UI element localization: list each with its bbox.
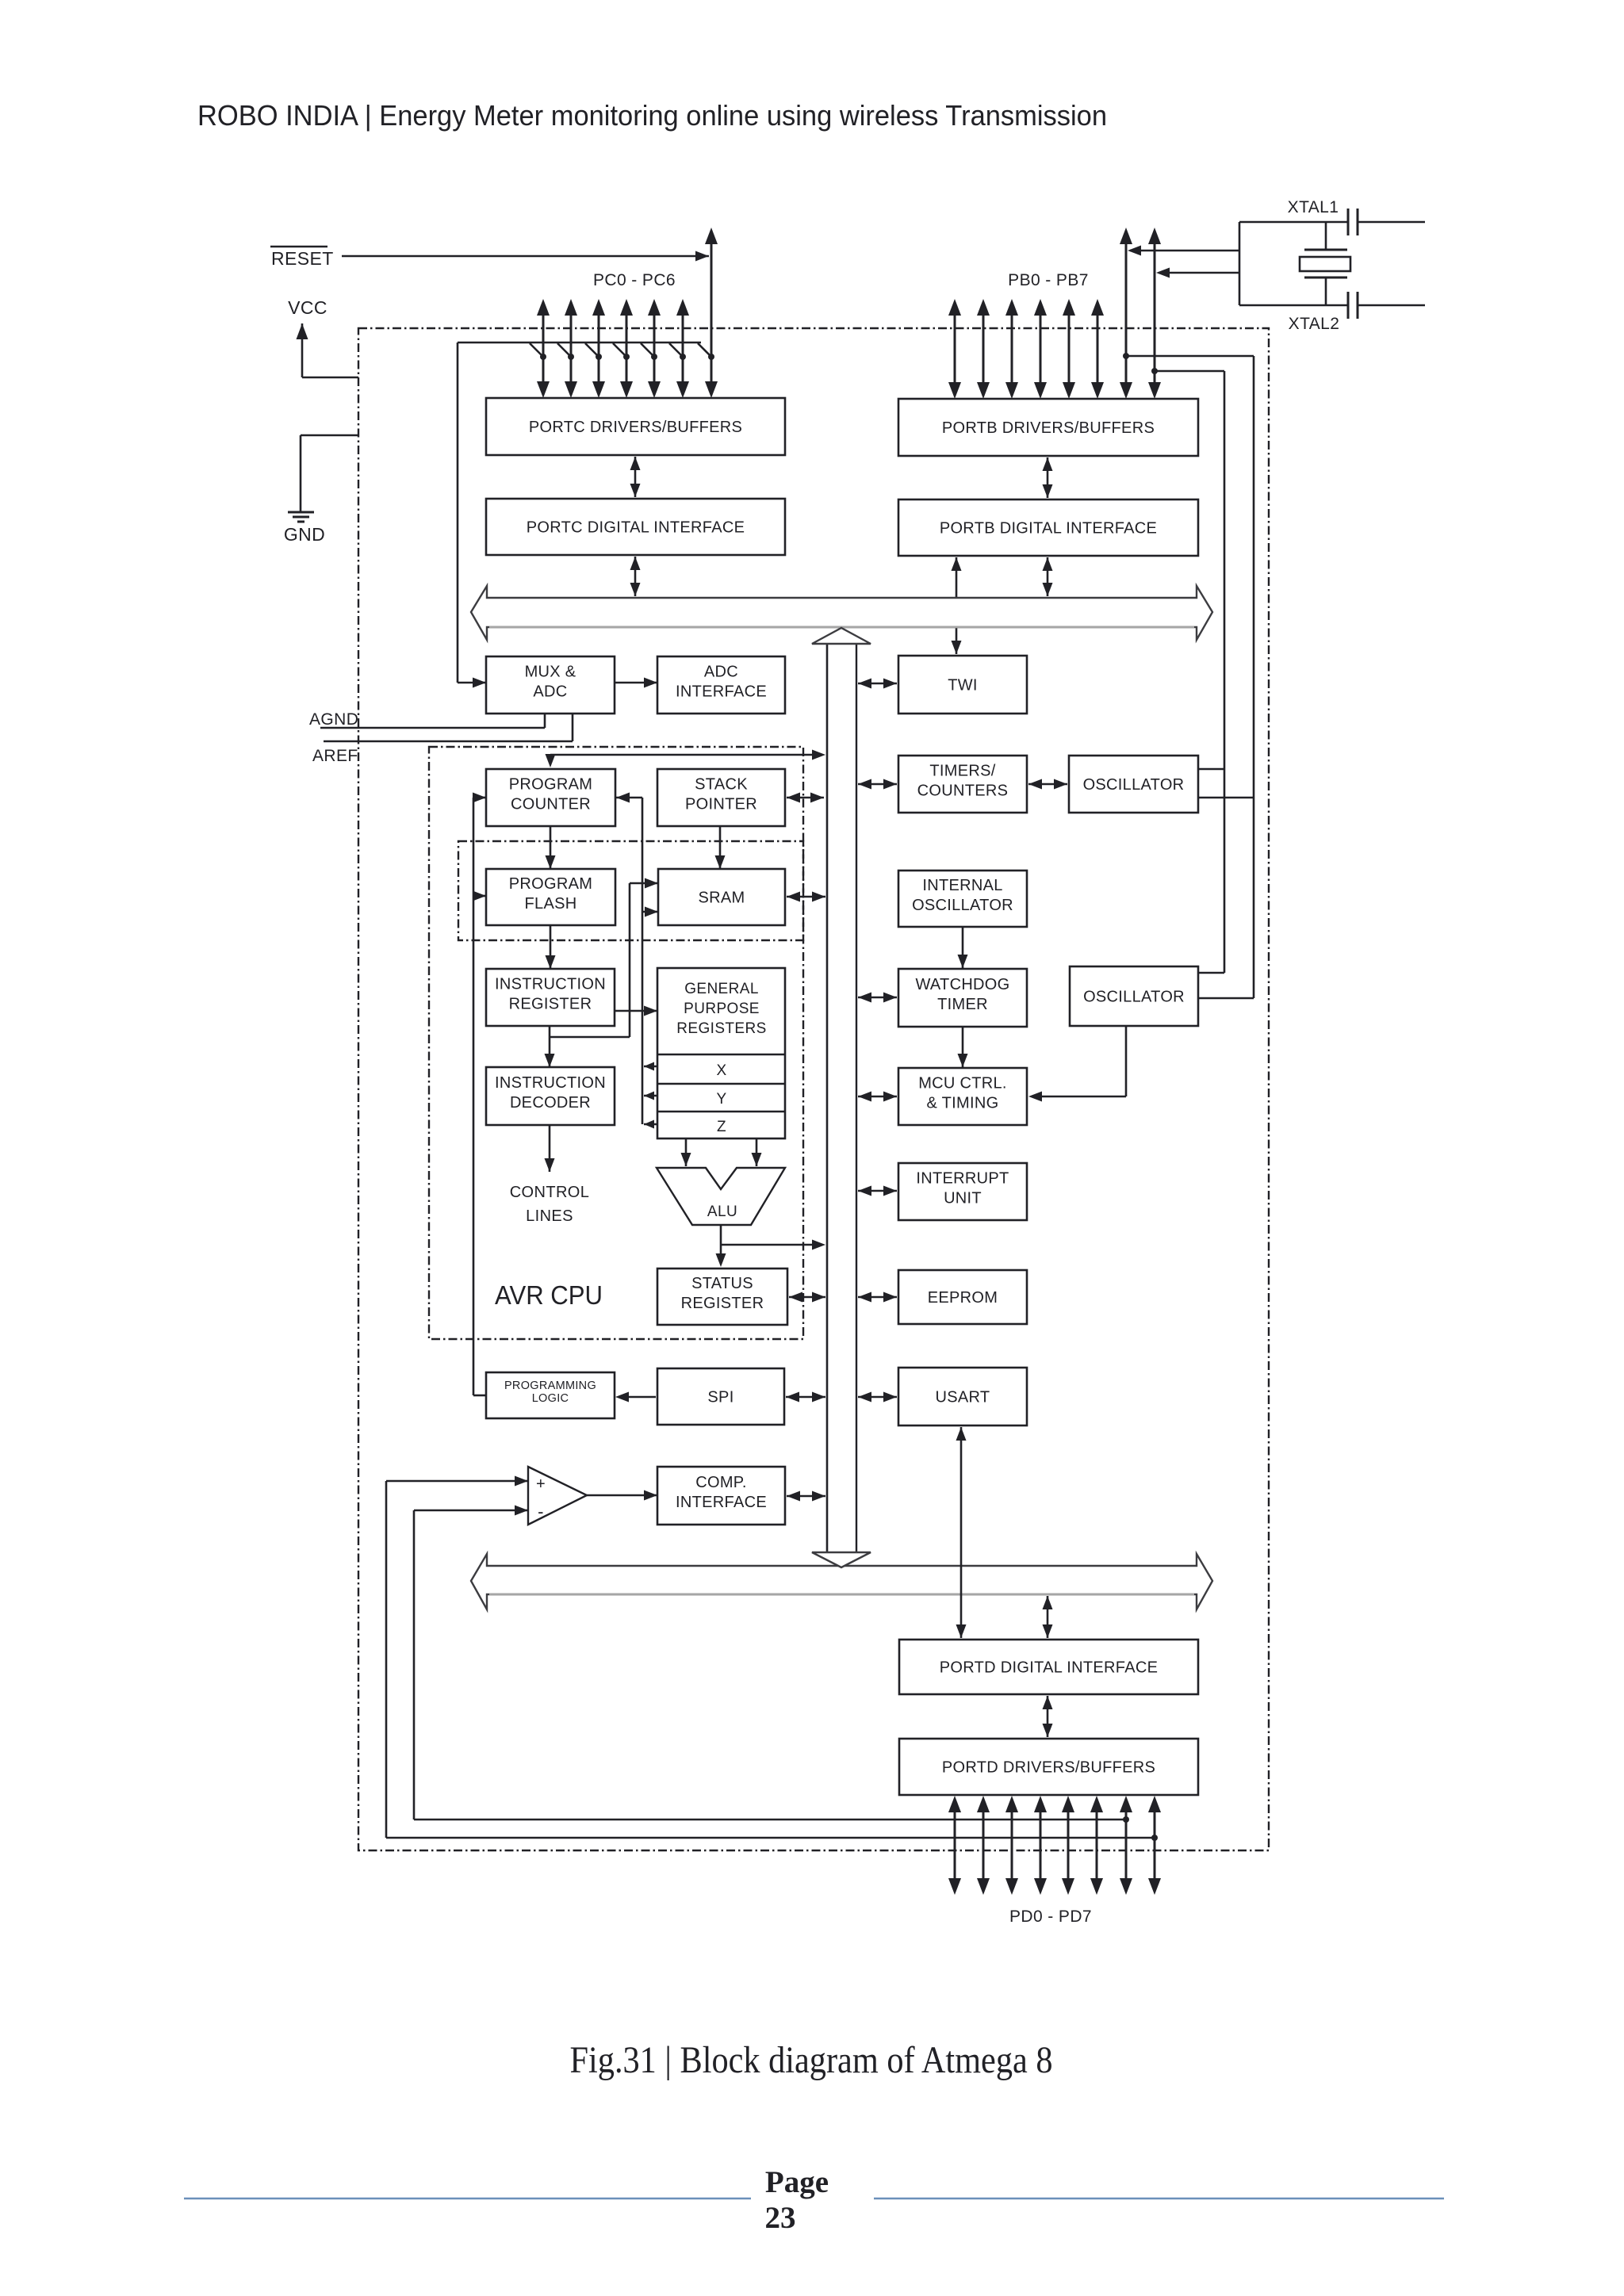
svg-text:Z: Z — [717, 1119, 726, 1135]
svg-text:PB0 - PB7: PB0 - PB7 — [1008, 271, 1089, 289]
svg-text:ALU: ALU — [707, 1203, 737, 1220]
svg-text:Y: Y — [716, 1091, 726, 1108]
svg-text:TWI: TWI — [948, 677, 978, 695]
svg-text:-: - — [538, 1502, 544, 1521]
svg-text:23: 23 — [765, 2201, 796, 2235]
svg-text:PROGRAM: PROGRAM — [509, 875, 592, 893]
svg-text:FLASH: FLASH — [525, 895, 577, 913]
svg-text:PORTB DIGITAL INTERFACE: PORTB DIGITAL INTERFACE — [940, 520, 1157, 538]
svg-text:STACK: STACK — [695, 776, 748, 794]
svg-text:COMP.: COMP. — [695, 1474, 746, 1491]
svg-text:REGISTERS: REGISTERS — [676, 1020, 766, 1037]
svg-text:RESET: RESET — [271, 248, 334, 269]
svg-text:MUX &: MUX & — [525, 664, 576, 681]
svg-text:+: + — [536, 1475, 546, 1493]
svg-text:WATCHDOG: WATCHDOG — [915, 976, 1009, 993]
svg-text:SRAM: SRAM — [699, 890, 745, 907]
svg-text:LINES: LINES — [526, 1207, 573, 1225]
svg-text:PD0 - PD7: PD0 - PD7 — [1009, 1908, 1092, 1926]
svg-text:REGISTER: REGISTER — [509, 996, 592, 1013]
svg-text:PORTC DIGITAL INTERFACE: PORTC DIGITAL INTERFACE — [527, 519, 745, 537]
svg-text:CONTROL: CONTROL — [510, 1184, 590, 1201]
svg-text:REGISTER: REGISTER — [681, 1295, 764, 1312]
svg-text:ROBO INDIA | Energy Meter moni: ROBO INDIA | Energy Meter monitoring onl… — [197, 99, 1107, 132]
svg-text:XTAL1: XTAL1 — [1288, 198, 1339, 216]
svg-text:USART: USART — [936, 1389, 990, 1406]
svg-text:MCU CTRL.: MCU CTRL. — [918, 1075, 1007, 1093]
svg-text:EEPROM: EEPROM — [928, 1289, 998, 1307]
svg-text:LOGIC: LOGIC — [532, 1392, 569, 1405]
svg-text:OSCILLATOR: OSCILLATOR — [912, 897, 1013, 914]
svg-text:INTERNAL: INTERNAL — [922, 877, 1002, 894]
svg-text:POINTER: POINTER — [685, 796, 757, 813]
svg-text:DECODER: DECODER — [510, 1094, 591, 1112]
svg-text:TIMERS/: TIMERS/ — [929, 763, 995, 780]
svg-text:Fig.31 | Block diagram of Atme: Fig.31 | Block diagram of Atmega 8 — [570, 2039, 1053, 2081]
svg-text:GENERAL: GENERAL — [684, 981, 759, 997]
svg-text:OSCILLATOR: OSCILLATOR — [1083, 776, 1185, 794]
svg-text:X: X — [716, 1062, 726, 1079]
svg-text:SPI: SPI — [707, 1389, 733, 1406]
svg-text:ADC: ADC — [704, 664, 738, 681]
svg-text:INSTRUCTION: INSTRUCTION — [495, 1074, 606, 1092]
svg-text:PORTC DRIVERS/BUFFERS: PORTC DRIVERS/BUFFERS — [529, 419, 742, 436]
svg-text:PURPOSE: PURPOSE — [684, 1001, 760, 1017]
svg-text:PORTD DRIVERS/BUFFERS: PORTD DRIVERS/BUFFERS — [942, 1759, 1155, 1777]
svg-text:AREF: AREF — [312, 747, 358, 765]
svg-text:VCC: VCC — [288, 297, 327, 318]
svg-text:GND: GND — [284, 524, 325, 545]
svg-text:COUNTER: COUNTER — [511, 796, 591, 813]
svg-text:PORTD DIGITAL INTERFACE: PORTD DIGITAL INTERFACE — [940, 1659, 1158, 1677]
svg-text:AGND: AGND — [309, 710, 358, 729]
svg-text:PROGRAMMING: PROGRAMMING — [504, 1380, 596, 1392]
svg-text:INSTRUCTION: INSTRUCTION — [495, 976, 606, 993]
svg-text:Page: Page — [765, 2165, 829, 2199]
svg-text:INTERFACE: INTERFACE — [676, 683, 767, 701]
svg-text:INTERRUPT: INTERRUPT — [916, 1170, 1009, 1188]
svg-text:PORTB DRIVERS/BUFFERS: PORTB DRIVERS/BUFFERS — [942, 419, 1155, 437]
svg-text:TIMER: TIMER — [937, 996, 988, 1013]
svg-text:PC0 - PC6: PC0 - PC6 — [593, 271, 676, 289]
svg-text:STATUS: STATUS — [691, 1275, 753, 1292]
svg-text:INTERFACE: INTERFACE — [676, 1494, 767, 1511]
svg-text:XTAL2: XTAL2 — [1289, 315, 1340, 333]
svg-text:PROGRAM: PROGRAM — [509, 776, 592, 794]
svg-text:ADC: ADC — [533, 683, 567, 701]
svg-text:COUNTERS: COUNTERS — [917, 783, 1009, 800]
svg-text:AVR CPU: AVR CPU — [495, 1280, 603, 1310]
svg-text:UNIT: UNIT — [944, 1190, 982, 1207]
svg-text:OSCILLATOR: OSCILLATOR — [1083, 989, 1185, 1006]
svg-text:& TIMING: & TIMING — [927, 1095, 999, 1112]
